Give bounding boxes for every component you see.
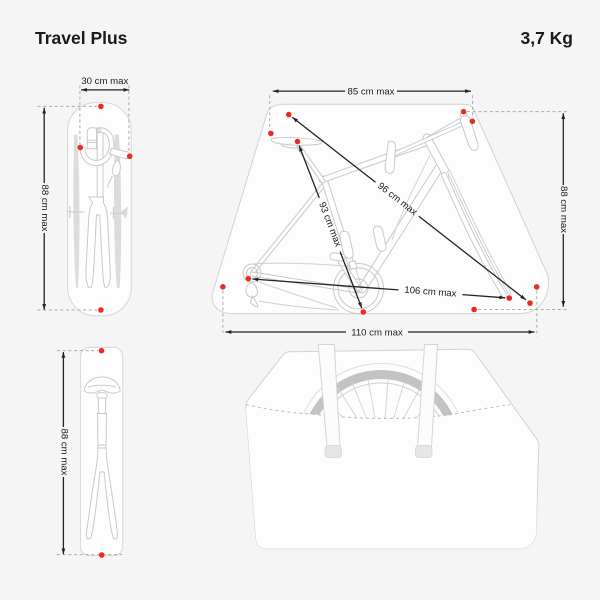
svg-text:88 cm max: 88 cm max bbox=[39, 185, 50, 232]
svg-text:30 cm max: 30 cm max bbox=[81, 76, 128, 87]
svg-text:88 cm max: 88 cm max bbox=[558, 186, 569, 233]
svg-text:110 cm max: 110 cm max bbox=[351, 328, 403, 339]
svg-text:88 cm max: 88 cm max bbox=[58, 429, 69, 476]
svg-text:Travel Plus: Travel Plus bbox=[35, 28, 128, 48]
svg-text:85 cm max: 85 cm max bbox=[348, 87, 395, 98]
svg-text:3,7 Kg: 3,7 Kg bbox=[520, 28, 573, 48]
